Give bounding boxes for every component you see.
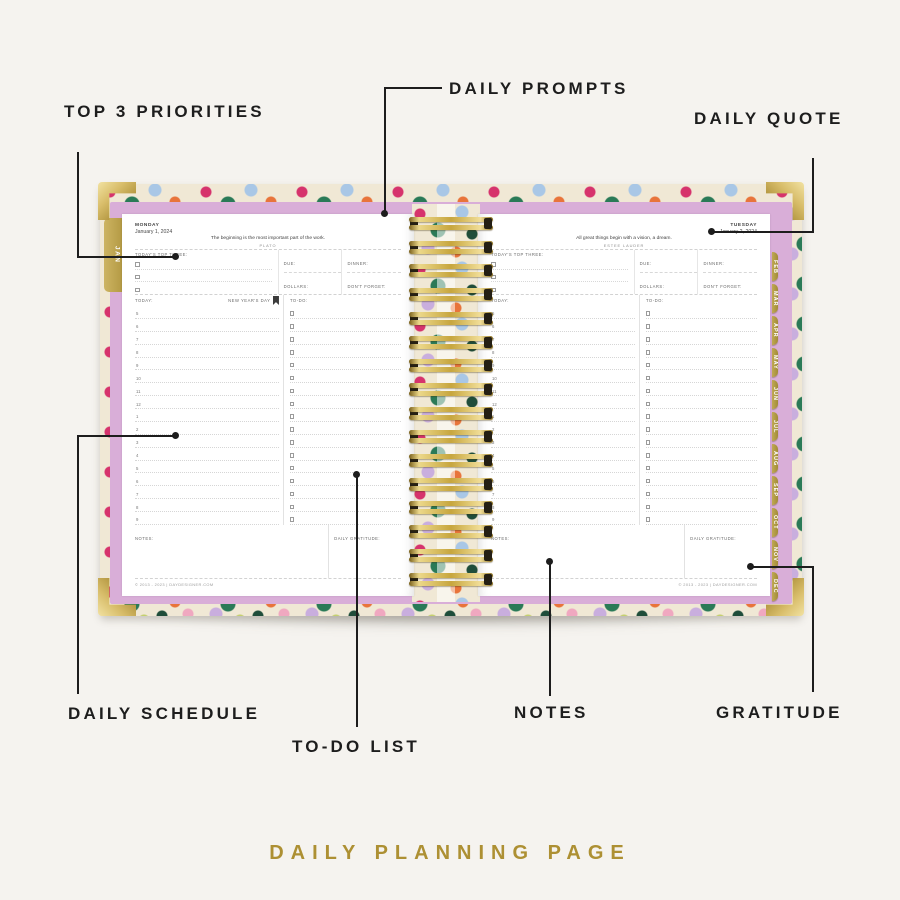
checkbox-icon: [290, 311, 295, 316]
top-three-slot: [135, 282, 272, 294]
coil-wire: [409, 525, 493, 530]
schedule-time-row: 8: [135, 499, 279, 512]
coil-loop: [407, 573, 495, 586]
todo-row: [290, 409, 401, 422]
checkbox-icon: [646, 492, 651, 497]
coil-wire: [409, 454, 493, 459]
callout-line: [812, 566, 814, 692]
daily-quote-block: All great things begin with a vision, a …: [491, 236, 757, 248]
coil-wire: [409, 264, 493, 269]
checkbox-icon: [290, 414, 295, 419]
todo-label: TO-DO:: [290, 298, 308, 303]
checkbox-icon: [290, 505, 295, 510]
schedule-time-row: 11: [135, 383, 279, 396]
month-tab-apr: APR: [772, 316, 778, 345]
todo-row: [646, 473, 757, 486]
checkbox-icon: [290, 363, 295, 368]
page-header: TUESDAY January 2, 2024 All great things…: [491, 223, 757, 249]
checkbox-icon: [646, 389, 651, 394]
checkbox-icon: [290, 440, 295, 445]
schedule-rows: 56789101112123456789: [135, 306, 279, 525]
todo-row: [646, 383, 757, 396]
callout-daily-quote: DAILY QUOTE: [694, 109, 844, 129]
todo-row: [646, 499, 757, 512]
todo-row: [646, 409, 757, 422]
coil-wire: [409, 249, 493, 254]
coil-loop: [407, 241, 495, 254]
schedule-time-row: 10: [135, 370, 279, 383]
coil-wire: [409, 367, 493, 372]
schedule-todo-section: TODAY: NEW YEAR'S DAY 567891011121234567…: [135, 295, 401, 525]
checkbox-icon: [290, 427, 295, 432]
schedule-time-row: 3: [491, 435, 635, 448]
due-label: DUE:: [640, 261, 652, 266]
checkbox-icon: [646, 414, 651, 419]
todo-row: [646, 306, 757, 319]
coil-wire: [409, 217, 493, 222]
schedule-time-row: 1: [135, 409, 279, 422]
schedule-time-row: 4: [491, 448, 635, 461]
checkbox-icon: [646, 376, 651, 381]
planner-page-left: MONDAY January 1, 2024 The beginning is …: [122, 214, 414, 596]
todo-label: TO-DO:: [646, 298, 664, 303]
todo-row: [290, 370, 401, 383]
todo-row: [290, 345, 401, 358]
checkbox-icon: [290, 517, 295, 522]
coil-wire: [409, 462, 493, 467]
schedule-todo-section: TODAY: 56789101112123456789 TO-DO:: [491, 295, 757, 525]
coil-wire: [409, 438, 493, 443]
checkbox-icon: [290, 402, 295, 407]
coil-loop: [407, 430, 495, 443]
coil-wire: [409, 430, 493, 435]
month-tab-jul: JUL: [772, 412, 778, 441]
checkbox-icon: [290, 492, 295, 497]
coil-wire: [409, 296, 493, 301]
holiday-label: NEW YEAR'S DAY: [228, 298, 270, 303]
coil-loop: [407, 359, 495, 372]
checkbox-icon: [290, 337, 295, 342]
checkbox-icon: [290, 453, 295, 458]
todo-row: [646, 370, 757, 383]
date-text: January 1, 2024: [135, 229, 401, 235]
todo-row: [290, 358, 401, 371]
quote-author: PLATO: [135, 243, 401, 248]
coil-loop: [407, 525, 495, 538]
callout-notes: NOTES: [514, 703, 589, 723]
top-three-section: TODAY'S TOP THREE: DUE: DOLLARS: DINNER:…: [135, 249, 401, 295]
todo-row: [646, 332, 757, 345]
todo-row: [646, 435, 757, 448]
todo-row: [290, 435, 401, 448]
coil-wire: [409, 344, 493, 349]
coil-loop: [407, 549, 495, 562]
schedule-time-row: 2: [491, 422, 635, 435]
callout-daily-schedule: DAILY SCHEDULE: [68, 704, 260, 724]
top-three-slot: [491, 270, 628, 283]
month-tab-jun: JUN: [772, 380, 778, 409]
coil-loop: [407, 454, 495, 467]
bookmark-ribbon-icon: [273, 296, 279, 305]
schedule-time-row: 7: [135, 486, 279, 499]
schedule-time-row: 8: [491, 499, 635, 512]
schedule-time-row: 7: [135, 332, 279, 345]
checkbox-icon: [290, 479, 295, 484]
schedule-time-row: 12: [135, 396, 279, 409]
dont-forget-label: DON'T FORGET:: [347, 284, 385, 289]
due-label: DUE:: [284, 261, 296, 266]
coil-wire: [409, 359, 493, 364]
checkbox-icon: [646, 427, 651, 432]
notes-label: NOTES:: [135, 536, 154, 541]
todo-row: [290, 499, 401, 512]
gratitude-label: DAILY GRATITUDE:: [334, 536, 380, 541]
coil-wire: [409, 272, 493, 277]
top-three-section: TODAY'S TOP THREE: DUE: DOLLARS: DINNER:…: [491, 249, 757, 295]
checkbox-icon: [135, 288, 140, 293]
todo-row: [646, 512, 757, 525]
checkbox-icon: [290, 324, 295, 329]
coil-wire: [409, 478, 493, 483]
schedule-time-row: 9: [491, 358, 635, 371]
quote-text: The beginning is the most important part…: [135, 236, 401, 241]
todo-row: [290, 306, 401, 319]
page-footer: © 2013 - 2023 | DAYDESIGNER.COM: [135, 582, 401, 587]
checkbox-icon: [290, 466, 295, 471]
checkbox-icon: [646, 402, 651, 407]
callout-line: [77, 152, 79, 258]
todo-rows: [290, 306, 401, 525]
todo-row: [646, 358, 757, 371]
coil-wire: [409, 288, 493, 293]
callout-todo-list: TO-DO LIST: [292, 737, 420, 757]
top-three-slot: [491, 257, 628, 270]
coil-loop: [407, 217, 495, 230]
todo-row: [646, 486, 757, 499]
coil-wire: [409, 407, 493, 412]
coil-wire: [409, 557, 493, 562]
checkbox-icon: [135, 275, 140, 280]
schedule-time-row: 6: [491, 473, 635, 486]
gratitude-label: DAILY GRATITUDE:: [690, 536, 736, 541]
coil-loop: [407, 501, 495, 514]
callout-line: [812, 158, 814, 233]
month-tab-dec: DEC: [772, 572, 778, 601]
checkbox-icon: [646, 453, 651, 458]
todo-row: [646, 448, 757, 461]
todo-row: [646, 422, 757, 435]
day-name: MONDAY: [135, 223, 401, 228]
todo-row: [646, 345, 757, 358]
callout-daily-prompts: DAILY PROMPTS: [449, 79, 629, 99]
schedule-time-row: 10: [491, 370, 635, 383]
notes-gratitude-section: NOTES: DAILY GRATITUDE:: [491, 525, 757, 579]
month-tab-may: MAY: [772, 348, 778, 377]
todo-row: [646, 319, 757, 332]
coil-loop: [407, 264, 495, 277]
coil-wire: [409, 549, 493, 554]
todo-row: [646, 396, 757, 409]
page-footer: © 2013 - 2023 | DAYDESIGNER.COM: [491, 582, 757, 587]
callout-line: [77, 436, 79, 694]
todo-row: [290, 422, 401, 435]
schedule-time-row: 5: [135, 306, 279, 319]
schedule-time-row: 8: [491, 345, 635, 358]
coil-loop: [407, 312, 495, 325]
checkbox-icon: [646, 440, 651, 445]
coil-loop: [407, 407, 495, 420]
daily-quote-block: The beginning is the most important part…: [135, 236, 401, 248]
top-three-slot: [135, 257, 272, 270]
checkbox-icon: [646, 479, 651, 484]
month-tab-nov: NOV: [772, 540, 778, 569]
coil-wire: [409, 391, 493, 396]
notes-gratitude-section: NOTES: DAILY GRATITUDE:: [135, 525, 401, 579]
checkbox-icon: [646, 350, 651, 355]
checkbox-icon: [135, 262, 140, 267]
coil-loop: [407, 336, 495, 349]
month-tab-mar: MAR: [772, 284, 778, 313]
date-text: January 2, 2024: [491, 229, 757, 235]
schedule-time-row: 9: [135, 512, 279, 525]
checkbox-icon: [646, 466, 651, 471]
coil-wire: [409, 320, 493, 325]
checkbox-icon: [290, 389, 295, 394]
schedule-time-row: 9: [491, 512, 635, 525]
image-caption: DAILY PLANNING PAGE: [0, 842, 900, 865]
dollars-label: DOLLARS:: [284, 284, 309, 289]
month-tab-feb: FEB: [772, 252, 778, 281]
schedule-time-row: 6: [135, 319, 279, 332]
checkbox-icon: [290, 376, 295, 381]
schedule-time-row: 6: [491, 319, 635, 332]
month-tabs: FEBMARAPRMAYJUNJULAUGSEPOCTNOVDEC: [772, 252, 798, 604]
todo-row: [290, 461, 401, 474]
quote-author: ESTEE LAUDER: [491, 243, 757, 248]
quote-text: All great things begin with a vision, a …: [491, 236, 757, 241]
schedule-time-row: 1: [491, 409, 635, 422]
coil-wire: [409, 581, 493, 586]
dollars-label: DOLLARS:: [640, 284, 665, 289]
checkbox-icon: [646, 311, 651, 316]
schedule-rows: 56789101112123456789: [491, 306, 635, 525]
schedule-time-row: 2: [135, 422, 279, 435]
coil-loop: [407, 383, 495, 396]
todo-row: [290, 319, 401, 332]
scene: JAN FEBMARAPRMAYJUNJULAUGSEPOCTNOVDEC MO…: [0, 0, 900, 900]
todo-row: [290, 396, 401, 409]
schedule-time-row: 8: [135, 345, 279, 358]
callout-top-3-priorities: TOP 3 PRIORITIES: [64, 102, 265, 122]
coil-wire: [409, 225, 493, 230]
schedule-time-row: 5: [491, 306, 635, 319]
todo-row: [290, 383, 401, 396]
schedule-time-row: 4: [135, 448, 279, 461]
schedule-time-row: 6: [135, 473, 279, 486]
checkbox-icon: [646, 517, 651, 522]
todo-row: [290, 486, 401, 499]
callout-gratitude: GRATITUDE: [716, 703, 843, 723]
coil-wire: [409, 415, 493, 420]
top-three-slot: [135, 270, 272, 283]
dinner-label: DINNER:: [347, 261, 368, 266]
checkbox-icon: [646, 505, 651, 510]
dont-forget-label: DON'T FORGET:: [703, 284, 741, 289]
schedule-time-row: 9: [135, 358, 279, 371]
todo-rows: [646, 306, 757, 525]
todo-row: [646, 461, 757, 474]
coil-wire: [409, 312, 493, 317]
coil-wire: [409, 383, 493, 388]
top-three-slot: [491, 282, 628, 294]
checkbox-icon: [646, 324, 651, 329]
schedule-time-row: 5: [135, 461, 279, 474]
schedule-time-row: 7: [491, 486, 635, 499]
checkbox-icon: [646, 363, 651, 368]
coil-loop: [407, 478, 495, 491]
planner-page-right: TUESDAY January 2, 2024 All great things…: [478, 214, 770, 596]
today-label: TODAY:: [135, 298, 153, 303]
todo-row: [290, 473, 401, 486]
month-tab-aug: AUG: [772, 444, 778, 473]
schedule-time-row: 5: [491, 461, 635, 474]
schedule-time-row: 3: [135, 435, 279, 448]
page-header: MONDAY January 1, 2024 The beginning is …: [135, 223, 401, 249]
coil-wire: [409, 486, 493, 491]
day-name: TUESDAY: [491, 223, 757, 228]
todo-row: [290, 332, 401, 345]
todo-row: [290, 512, 401, 525]
dinner-label: DINNER:: [703, 261, 724, 266]
todo-row: [290, 448, 401, 461]
coil-wire: [409, 573, 493, 578]
checkbox-icon: [646, 337, 651, 342]
month-tab-oct: OCT: [772, 508, 778, 537]
holiday-flag: NEW YEAR'S DAY: [228, 296, 279, 305]
coil-wire: [409, 336, 493, 341]
checkbox-icon: [290, 350, 295, 355]
month-tab-sep: SEP: [772, 476, 778, 505]
coil-wire: [409, 509, 493, 514]
callout-line: [384, 87, 442, 89]
coil-wire: [409, 501, 493, 506]
coil-wire: [409, 533, 493, 538]
schedule-time-row: 7: [491, 332, 635, 345]
schedule-time-row: 12: [491, 396, 635, 409]
coil-wire: [409, 241, 493, 246]
coil-loop: [407, 288, 495, 301]
schedule-time-row: 11: [491, 383, 635, 396]
